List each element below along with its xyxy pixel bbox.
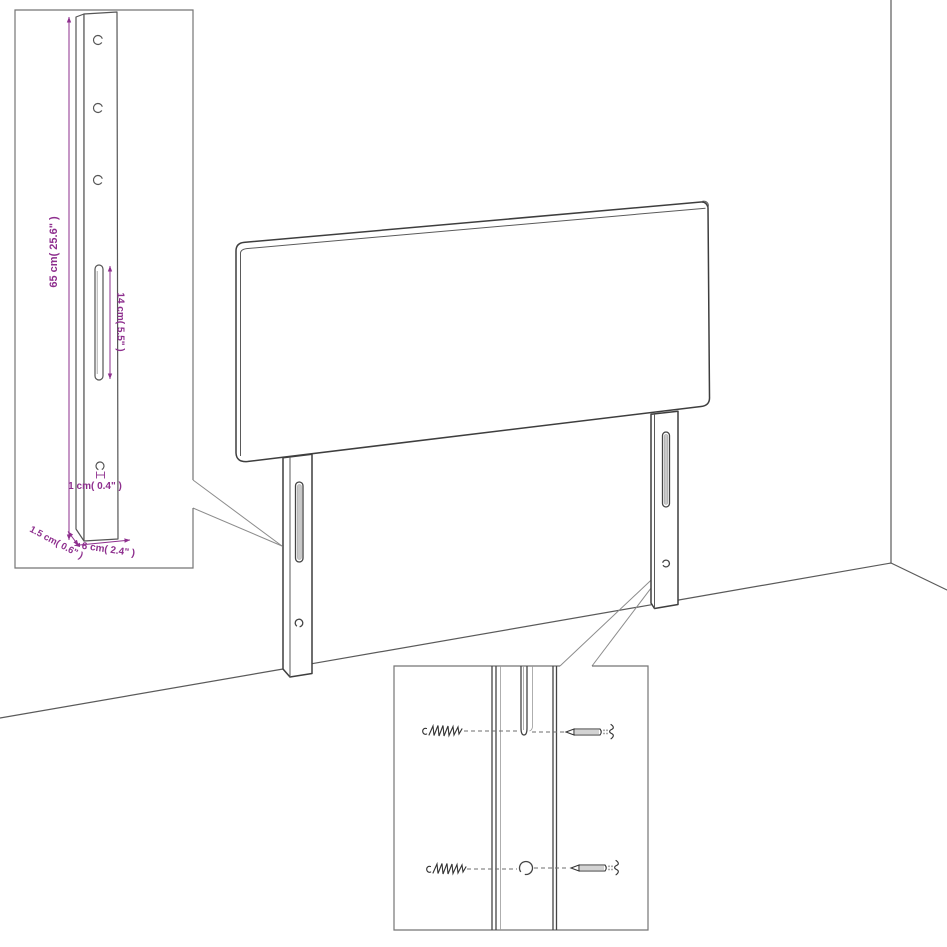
- dim-slot-label: 14 cm( 5.5" ): [115, 292, 126, 351]
- panel-outline: [236, 202, 710, 462]
- inset-slot: [521, 666, 527, 735]
- floor-line-right-wall: [891, 563, 947, 590]
- inset-screw-hole-icon: [517, 859, 535, 877]
- headboard-panel: [236, 201, 710, 462]
- inset-slot-depth-line: [530, 666, 533, 731]
- dim-height-label: 65 cm( 25.6" ): [48, 216, 60, 288]
- headboard-right-leg: [651, 411, 678, 608]
- left-leg-slot-inner-shadow: [297, 485, 301, 560]
- floor-line-right-of-leg: [678, 563, 891, 600]
- right-leg-slot-inner-shadow: [664, 434, 668, 504]
- dim-hole-label: 1 cm( 0.4" ): [68, 481, 122, 492]
- headboard-left-leg: [283, 454, 312, 677]
- post-side-face: [76, 14, 84, 541]
- headboard-dimension-diagram: 65 cm( 25.6" ) 14 cm( 5.5" ) 1 cm( 0.4" …: [0, 0, 947, 947]
- wood-screw-top-icon: [423, 726, 462, 737]
- machine-screw-top-icon: [566, 725, 613, 739]
- wood-screw-bottom-icon: [427, 864, 466, 875]
- callout-wedge-left-inset: [193, 480, 282, 546]
- dim-width-label: 6 cm( 2.4" ): [81, 541, 136, 559]
- inset-screw-detail: [394, 666, 648, 930]
- floor-line-left: [0, 669, 283, 718]
- machine-screw-bottom-icon: [571, 861, 618, 875]
- inset-post-detail: 65 cm( 25.6" ) 14 cm( 5.5" ) 1 cm( 0.4" …: [15, 10, 193, 568]
- diagram-canvas: 65 cm( 25.6" ) 14 cm( 5.5" ) 1 cm( 0.4" …: [0, 0, 947, 947]
